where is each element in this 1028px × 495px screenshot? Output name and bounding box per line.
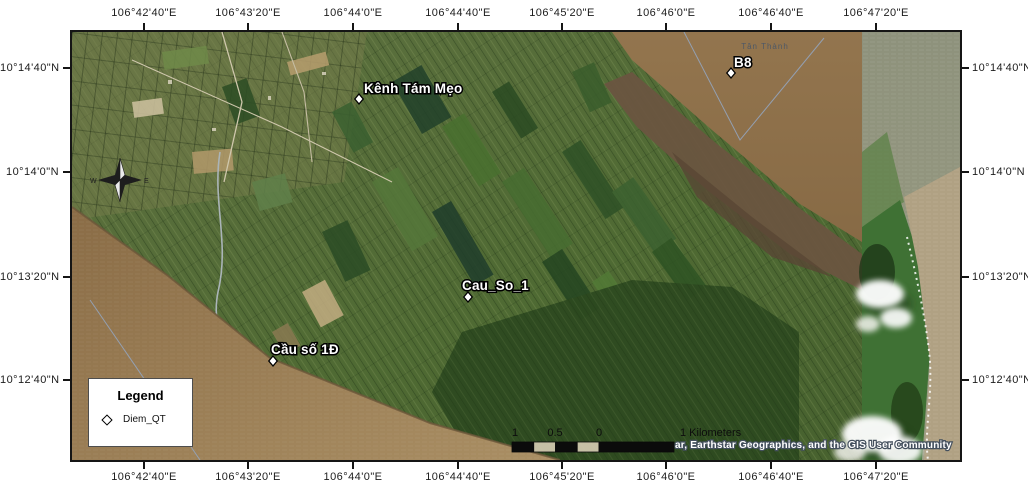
axis-label-left: 10°12'40"N	[0, 374, 59, 386]
axis-tick	[561, 23, 563, 30]
scale-bar-unit: 1 Kilometers	[680, 427, 742, 439]
map-layout-page: 106°42'40"E106°42'40"E106°43'20"E106°43'…	[0, 0, 1028, 495]
scale-bar-number: 0.5	[547, 427, 562, 439]
point-label-kenh-tam-meo: Kênh Tám Mẹo	[364, 81, 462, 96]
axis-label-bottom: 106°42'40"E	[111, 471, 177, 483]
axis-tick	[63, 276, 70, 278]
axis-label-bottom: 106°45'20"E	[529, 471, 595, 483]
axis-label-top: 106°47'20"E	[843, 7, 909, 19]
axis-tick	[875, 462, 877, 469]
svg-text:W: W	[90, 178, 97, 185]
axis-label-bottom: 106°46'40"E	[738, 471, 804, 483]
axis-tick	[63, 379, 70, 381]
diamond-point-icon	[101, 414, 112, 425]
axis-label-bottom: 106°43'20"E	[215, 471, 281, 483]
axis-label-top: 106°43'20"E	[215, 7, 281, 19]
axis-tick	[143, 23, 145, 30]
basemap-label-tan-thanh: Tân Thành	[741, 42, 789, 51]
axis-label-right: 10°14'40"N	[972, 62, 1028, 74]
axis-tick	[665, 23, 667, 30]
axis-tick	[63, 67, 70, 69]
axis-tick	[875, 23, 877, 30]
axis-tick	[247, 23, 249, 30]
scale-bar-segment	[512, 442, 534, 452]
axis-label-bottom: 106°47'20"E	[843, 471, 909, 483]
attribution-text: ar, Earthstar Geographics, and the GIS U…	[675, 440, 952, 451]
axis-tick	[962, 379, 969, 381]
axis-label-top: 106°46'0"E	[637, 7, 696, 19]
axis-label-right: 10°12'40"N	[972, 374, 1028, 386]
axis-tick	[962, 276, 969, 278]
map-frame: W E Tân Thành Kênh Tám MẹoB8Cau_So_1Cầu …	[70, 30, 962, 462]
svg-text:E: E	[144, 178, 149, 185]
axis-tick	[352, 462, 354, 469]
scale-bar-number: 0	[596, 427, 602, 439]
legend-title: Legend	[89, 388, 192, 403]
axis-label-left: 10°13'20"N	[0, 271, 59, 283]
point-label-cau-so-1: Cau_So_1	[462, 278, 529, 293]
scale-bar-segment	[534, 442, 556, 452]
axis-label-bottom: 106°46'0"E	[637, 471, 696, 483]
point-label-b8: B8	[734, 55, 752, 70]
axis-label-left: 10°14'0"N	[0, 166, 59, 178]
axis-label-top: 106°44'40"E	[425, 7, 491, 19]
axis-tick	[665, 462, 667, 469]
axis-label-right: 10°13'20"N	[972, 271, 1028, 283]
axis-tick	[247, 462, 249, 469]
axis-tick	[962, 171, 969, 173]
scale-bar-segment	[599, 442, 674, 452]
map-canvas[interactable]: W E Tân Thành Kênh Tám MẹoB8Cau_So_1Cầu …	[72, 32, 960, 460]
axis-tick	[962, 67, 969, 69]
scale-bar-segment	[556, 442, 578, 452]
scale-bar-number: 1	[512, 427, 518, 439]
axis-tick	[770, 23, 772, 30]
legend: Legend Diem_QT	[88, 378, 193, 447]
axis-tick	[143, 462, 145, 469]
axis-label-left: 10°14'40"N	[0, 62, 59, 74]
axis-label-top: 106°44'0"E	[324, 7, 383, 19]
axis-label-bottom: 106°44'40"E	[425, 471, 491, 483]
axis-tick	[352, 23, 354, 30]
axis-tick	[561, 462, 563, 469]
axis-tick	[457, 23, 459, 30]
basemap-labels: Tân Thành	[741, 42, 789, 51]
axis-label-top: 106°45'20"E	[529, 7, 595, 19]
axis-tick	[457, 462, 459, 469]
legend-item-label: Diem_QT	[123, 414, 166, 425]
scale-bar-segment	[577, 442, 599, 452]
point-label-cau-so-1d: Cầu số 1Đ	[271, 342, 339, 357]
axis-label-right: 10°14'0"N	[972, 166, 1025, 178]
legend-item: Diem_QT	[103, 414, 192, 425]
axis-tick	[770, 462, 772, 469]
axis-label-bottom: 106°44'0"E	[324, 471, 383, 483]
axis-tick	[63, 171, 70, 173]
axis-label-top: 106°46'40"E	[738, 7, 804, 19]
axis-label-top: 106°42'40"E	[111, 7, 177, 19]
